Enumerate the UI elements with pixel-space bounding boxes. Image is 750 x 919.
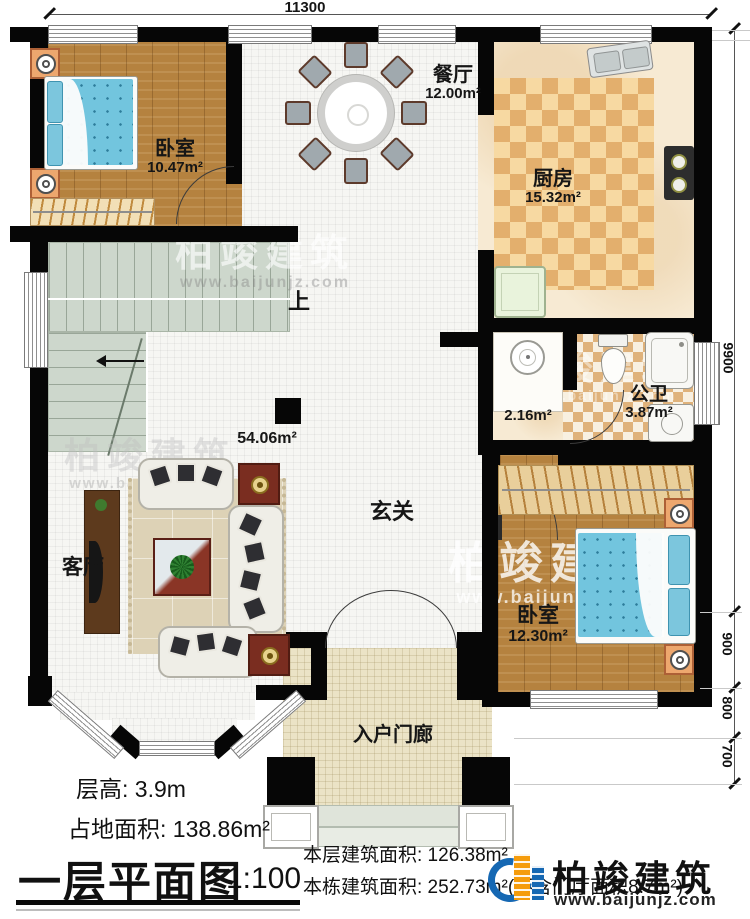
dim-extension-line bbox=[712, 30, 750, 31]
room-name: 餐厅 bbox=[418, 64, 488, 86]
pillow bbox=[47, 81, 63, 123]
column bbox=[275, 398, 301, 424]
floor-height-text: 层高: 3.9m bbox=[76, 770, 186, 804]
sink-basin bbox=[593, 50, 622, 73]
room-area: 10.47m² bbox=[140, 160, 210, 177]
stairs-direction-line bbox=[104, 360, 144, 362]
stairs-upper-flight bbox=[48, 242, 290, 332]
stairs-lower-flight bbox=[48, 332, 148, 452]
lamp-icon bbox=[251, 476, 269, 494]
floor-area-text: 本层建筑面积: 126.38m² bbox=[303, 840, 508, 867]
bathtub-drain bbox=[679, 342, 684, 347]
bathtub bbox=[645, 332, 694, 389]
stairs-landing-line bbox=[48, 298, 290, 300]
sofa-pillow bbox=[242, 540, 267, 565]
lamp-icon bbox=[670, 650, 690, 670]
stairs-up-label: 上 bbox=[288, 290, 310, 315]
room-area: 15.32m² bbox=[518, 190, 588, 207]
plant-icon bbox=[95, 499, 107, 511]
living-bay-floor-1 bbox=[60, 692, 255, 720]
dining-chair bbox=[285, 101, 311, 125]
dim-extension-line bbox=[514, 738, 742, 739]
lamp-icon bbox=[670, 504, 690, 524]
kitchen-stove bbox=[664, 146, 694, 200]
bedroom1-label: 卧室 10.47m² bbox=[140, 138, 210, 177]
floorplan-page: 上 柏竣建筑 www.baijunjz.com 柏竣建筑 www.baijunj… bbox=[0, 0, 750, 919]
land-area-text: 占地面积: 138.86m² bbox=[68, 810, 270, 844]
window-bay-center bbox=[139, 741, 215, 756]
bedroom2-nightstand-bottom bbox=[664, 644, 694, 675]
room-area: 12.00m² bbox=[418, 86, 488, 103]
porch-step-1 bbox=[315, 805, 462, 827]
base-inner bbox=[466, 813, 506, 841]
side-table-top bbox=[238, 463, 280, 505]
dim-line-top bbox=[48, 14, 712, 15]
window-stairs bbox=[24, 272, 48, 368]
bedroom2-nightstand-top bbox=[664, 498, 694, 529]
dim-extension-line bbox=[712, 40, 750, 41]
sofa-pillow bbox=[176, 463, 196, 483]
living-label: 客厅 bbox=[58, 556, 108, 580]
wall-bedroom1-east bbox=[226, 42, 242, 184]
kitchen-fridge bbox=[494, 266, 546, 318]
porch-column-left bbox=[267, 757, 315, 805]
toilet-tank bbox=[598, 334, 628, 347]
logo-building-blue bbox=[532, 866, 544, 900]
coffee-table bbox=[153, 538, 211, 596]
room-name: 厨房 bbox=[518, 168, 588, 190]
dim-extension-line bbox=[700, 688, 742, 689]
stairs-arrow-icon bbox=[96, 355, 106, 367]
window-bathroom bbox=[694, 342, 720, 425]
wall-washnook-west bbox=[478, 332, 493, 455]
wall-bedroom2-north-a bbox=[482, 450, 500, 465]
window-bedroom1 bbox=[48, 25, 138, 44]
plan-scale: 1:100 bbox=[226, 862, 301, 896]
pillow bbox=[668, 535, 690, 585]
stairs-flight-divider bbox=[146, 332, 148, 452]
porch-label: 入户门廊 bbox=[330, 724, 456, 746]
washnook-area-label: 2.16m² bbox=[490, 408, 566, 425]
dim-right-seg3: 700 bbox=[720, 744, 736, 767]
sofa-pillow bbox=[195, 631, 218, 654]
stove-burner bbox=[671, 154, 687, 170]
wall-right-lower bbox=[694, 425, 712, 707]
dim-top-label: 11300 bbox=[270, 0, 340, 17]
room-area: 12.30m² bbox=[500, 628, 576, 646]
wall-bedroom1-south bbox=[10, 226, 298, 242]
wall-bedroom2-south-b bbox=[658, 692, 712, 707]
room-name: 卧室 bbox=[140, 138, 210, 160]
room-name: 公卫 bbox=[614, 384, 684, 405]
dining-chair bbox=[344, 158, 368, 184]
pillow bbox=[47, 124, 63, 166]
washbasin bbox=[510, 340, 545, 375]
lamp-icon bbox=[36, 54, 56, 74]
window-dining-right bbox=[378, 25, 456, 44]
wall-bath-separator bbox=[563, 332, 577, 390]
bedroom1-nightstand-bottom bbox=[30, 168, 60, 199]
lamp-icon bbox=[261, 647, 279, 665]
title-underline-thick bbox=[16, 900, 300, 905]
bedroom2-label: 卧室 12.30m² bbox=[500, 604, 576, 645]
dining-chair bbox=[401, 101, 427, 125]
lamp-icon bbox=[36, 174, 56, 194]
bathroom-label: 公卫 3.87m² bbox=[614, 384, 684, 422]
wall-porch-east-junction bbox=[457, 632, 498, 700]
side-table-bottom bbox=[248, 634, 290, 676]
dim-right-total: 9900 bbox=[721, 342, 737, 373]
dining-table-center bbox=[347, 104, 369, 126]
fridge-inner bbox=[501, 273, 539, 311]
base-inner bbox=[271, 813, 311, 841]
dim-extension-line bbox=[700, 612, 742, 613]
logo-building-orange bbox=[514, 854, 530, 900]
wall-bedroom2-north-b bbox=[558, 450, 712, 465]
window-dining-left bbox=[228, 25, 312, 44]
sink-basin bbox=[622, 46, 651, 69]
room-name: 卧室 bbox=[500, 604, 576, 628]
dining-table bbox=[318, 75, 394, 151]
hall-label: 玄关 bbox=[360, 500, 424, 525]
plant-icon bbox=[170, 555, 194, 579]
dim-right-seg2: 800 bbox=[720, 696, 736, 719]
dim-line-right bbox=[734, 28, 735, 785]
washbasin-drain bbox=[526, 355, 530, 359]
brand-logo-icon bbox=[488, 848, 546, 910]
dining-label: 餐厅 12.00m² bbox=[418, 64, 488, 103]
room-area: 3.87m² bbox=[614, 405, 684, 422]
pillow bbox=[668, 588, 690, 636]
bedroom1-wardrobe bbox=[30, 198, 155, 226]
brand-website: www.baijunjz.com bbox=[554, 890, 717, 910]
wardrobe-rod bbox=[33, 211, 152, 213]
stove-burner bbox=[671, 177, 687, 193]
title-underline-thin bbox=[16, 909, 300, 911]
dim-right-seg1: 900 bbox=[720, 632, 736, 655]
bedroom1-nightstand-top bbox=[30, 48, 60, 79]
wall-left-lower bbox=[30, 368, 48, 688]
wall-right-upper bbox=[694, 27, 712, 342]
closet-rod bbox=[502, 489, 690, 491]
dim-extension-line bbox=[514, 784, 742, 785]
dining-chair bbox=[344, 42, 368, 68]
hall-area-label: 54.06m² bbox=[222, 430, 312, 448]
wall-living-porch bbox=[256, 685, 314, 700]
kitchen-label: 厨房 15.32m² bbox=[518, 168, 588, 207]
porch-column-right bbox=[462, 757, 510, 805]
window-bedroom2 bbox=[530, 690, 658, 709]
